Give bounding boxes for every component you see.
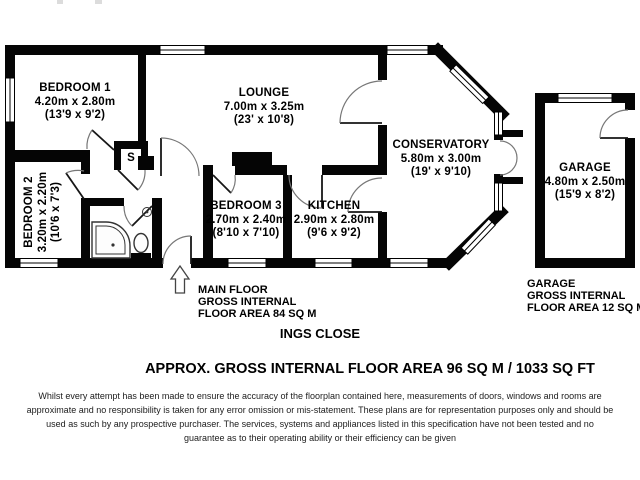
caption-line: GROSS INTERNAL	[527, 290, 640, 302]
room-size-metric: 7.00m x 3.25m	[224, 101, 305, 115]
door-entrance	[163, 236, 191, 264]
room-size-metric: 5.80m x 3.00m	[393, 153, 490, 167]
room-size-imperial: (9'6 x 9'2)	[294, 227, 375, 241]
room-name: CONSERVATORY	[393, 139, 490, 153]
disclaimer-line: guarantee as to their operating ability …	[10, 431, 630, 445]
room-size-imperial: (13'9 x 9'2)	[35, 109, 116, 123]
door-lounge-conservatory	[340, 81, 382, 123]
caption-line: GARAGE	[527, 278, 640, 290]
window	[558, 94, 612, 103]
basin-icon	[143, 208, 152, 217]
garage-caption: GARAGE GROSS INTERNAL FLOOR AREA 12 SQ M	[527, 278, 640, 314]
room-size-imperial: (10'6 x 7'3)	[50, 172, 64, 253]
room-label-bedroom-2: BEDROOM 2 3.20m x 2.20m (10'6 x 7'3)	[23, 172, 64, 253]
room-name: BEDROOM 2	[23, 172, 37, 253]
door-bedroom3	[213, 175, 235, 193]
caption-line: MAIN FLOOR	[198, 284, 316, 296]
total-area-line: APPROX. GROSS INTERNAL FLOOR AREA 96 SQ …	[100, 361, 640, 377]
window	[315, 259, 352, 268]
room-name: GARAGE	[545, 162, 626, 176]
disclaimer-line: used as such by any prospective purchase…	[10, 417, 630, 431]
caption-line: FLOOR AREA 12 SQ M	[527, 302, 640, 314]
window	[160, 46, 205, 55]
door-hall-lounge	[161, 138, 199, 176]
room-label-bedroom-3: BEDROOM 3 2.70m x 2.40m (8'10 x 7'10)	[206, 200, 287, 241]
window	[228, 259, 266, 268]
chimney-breast	[232, 152, 272, 166]
caption-line: FLOOR AREA 84 SQ M	[198, 308, 316, 320]
room-name: LOUNGE	[224, 87, 305, 101]
door-store	[118, 170, 145, 190]
window	[6, 78, 15, 122]
room-size-imperial: (8'10 x 7'10)	[206, 227, 287, 241]
window	[461, 219, 495, 254]
shower-icon	[92, 222, 130, 258]
window	[495, 183, 503, 211]
room-label-lounge: LOUNGE 7.00m x 3.25m (23' x 10'8)	[224, 87, 305, 128]
disclaimer-line: Whilst every attempt has been made to en…	[10, 389, 630, 403]
disclaimer-text: Whilst every attempt has been made to en…	[10, 389, 630, 445]
window	[390, 259, 428, 268]
door-bedroom2	[66, 170, 84, 199]
door-garage	[600, 110, 628, 138]
room-label-garage: GARAGE 4.80m x 2.50m (15'9 x 8'2)	[545, 162, 626, 203]
toilet-icon	[131, 234, 151, 261]
room-name: BEDROOM 3	[206, 200, 287, 214]
room-size-metric: 4.80m x 2.50m	[545, 176, 626, 190]
room-name: KITCHEN	[294, 200, 375, 214]
floorplan-page: BEDROOM 1 4.20m x 2.80m (13'9 x 9'2) LOU…	[0, 0, 640, 480]
room-size-metric: 3.20m x 2.20m	[36, 172, 50, 253]
entrance-arrow-icon	[171, 266, 189, 293]
room-size-metric: 4.20m x 2.80m	[35, 96, 116, 110]
disclaimer-line: approximate and no responsibility is tak…	[10, 403, 630, 417]
room-label-kitchen: KITCHEN 2.90m x 2.80m (9'6 x 9'2)	[294, 200, 375, 241]
french-doors-conservatory	[500, 141, 517, 175]
plan-title: INGS CLOSE	[0, 326, 640, 341]
window	[450, 65, 489, 104]
room-size-imperial: (15'9 x 8'2)	[545, 189, 626, 203]
caption-line: GROSS INTERNAL	[198, 296, 316, 308]
room-size-imperial: (23' x 10'8)	[224, 114, 305, 128]
room-size-metric: 2.70m x 2.40m	[206, 214, 287, 228]
room-label-bedroom-1: BEDROOM 1 4.20m x 2.80m (13'9 x 9'2)	[35, 82, 116, 123]
door-bedroom1	[87, 130, 114, 150]
store-cupboard-label: S	[127, 152, 135, 164]
room-name: BEDROOM 1	[35, 82, 116, 96]
room-size-metric: 2.90m x 2.80m	[294, 214, 375, 228]
window	[20, 259, 58, 268]
room-size-imperial: (19' x 9'10)	[393, 166, 490, 180]
window	[495, 112, 503, 135]
main-floor-caption: MAIN FLOOR GROSS INTERNAL FLOOR AREA 84 …	[198, 284, 316, 320]
room-label-conservatory: CONSERVATORY 5.80m x 3.00m (19' x 9'10)	[393, 139, 490, 180]
window	[387, 46, 428, 55]
